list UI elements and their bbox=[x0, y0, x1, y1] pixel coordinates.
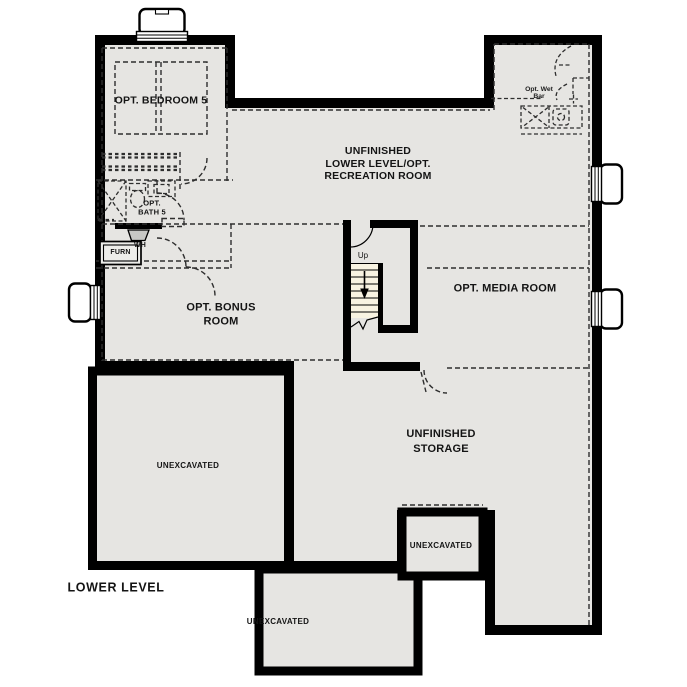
water-heater-symbol bbox=[128, 230, 149, 241]
window-well-top bbox=[137, 9, 188, 42]
room-label-unexcavated-right: UNEXCAVATED bbox=[410, 541, 472, 551]
floor-plan: OPT. BEDROOM 5 UNFINISHED LOWER LEVEL/OP… bbox=[0, 0, 687, 687]
furnace-label: FURN bbox=[110, 249, 130, 257]
window-well-left bbox=[69, 284, 101, 322]
room-label-recreation: UNFINISHED LOWER LEVEL/OPT. RECREATION R… bbox=[324, 145, 431, 183]
room-label-bonus: OPT. BONUS ROOM bbox=[186, 301, 255, 330]
room-label-unexcavated-bottom: UNEXCAVATED bbox=[247, 617, 309, 627]
room-label-wetbar: Opt. Wet Bar bbox=[525, 86, 553, 100]
stair-inner-wall bbox=[378, 263, 383, 327]
stair-bottom-wall bbox=[378, 325, 418, 333]
window-well-right-lower bbox=[592, 290, 623, 329]
room-label-unexcavated-left: UNEXCAVATED bbox=[157, 461, 219, 471]
window-well-right-upper bbox=[592, 165, 623, 204]
window-right-lower bbox=[592, 292, 602, 327]
water-heater-label: WH bbox=[134, 241, 146, 249]
room-label-bath5: OPT. BATH 5 bbox=[138, 199, 166, 216]
storage-top-wall bbox=[343, 362, 420, 371]
window-right-upper bbox=[592, 167, 602, 202]
window-top bbox=[137, 32, 188, 42]
plan-title: LOWER LEVEL bbox=[68, 581, 165, 596]
room-label-media: OPT. MEDIA ROOM bbox=[454, 282, 557, 295]
window-left bbox=[91, 286, 101, 320]
room-label-storage: UNFINISHED STORAGE bbox=[406, 427, 475, 457]
stairs-up-label: Up bbox=[358, 251, 368, 261]
stair-right-wall bbox=[410, 220, 418, 333]
room-label-bedroom5: OPT. BEDROOM 5 bbox=[115, 95, 208, 108]
stair-left-wall bbox=[343, 220, 351, 370]
